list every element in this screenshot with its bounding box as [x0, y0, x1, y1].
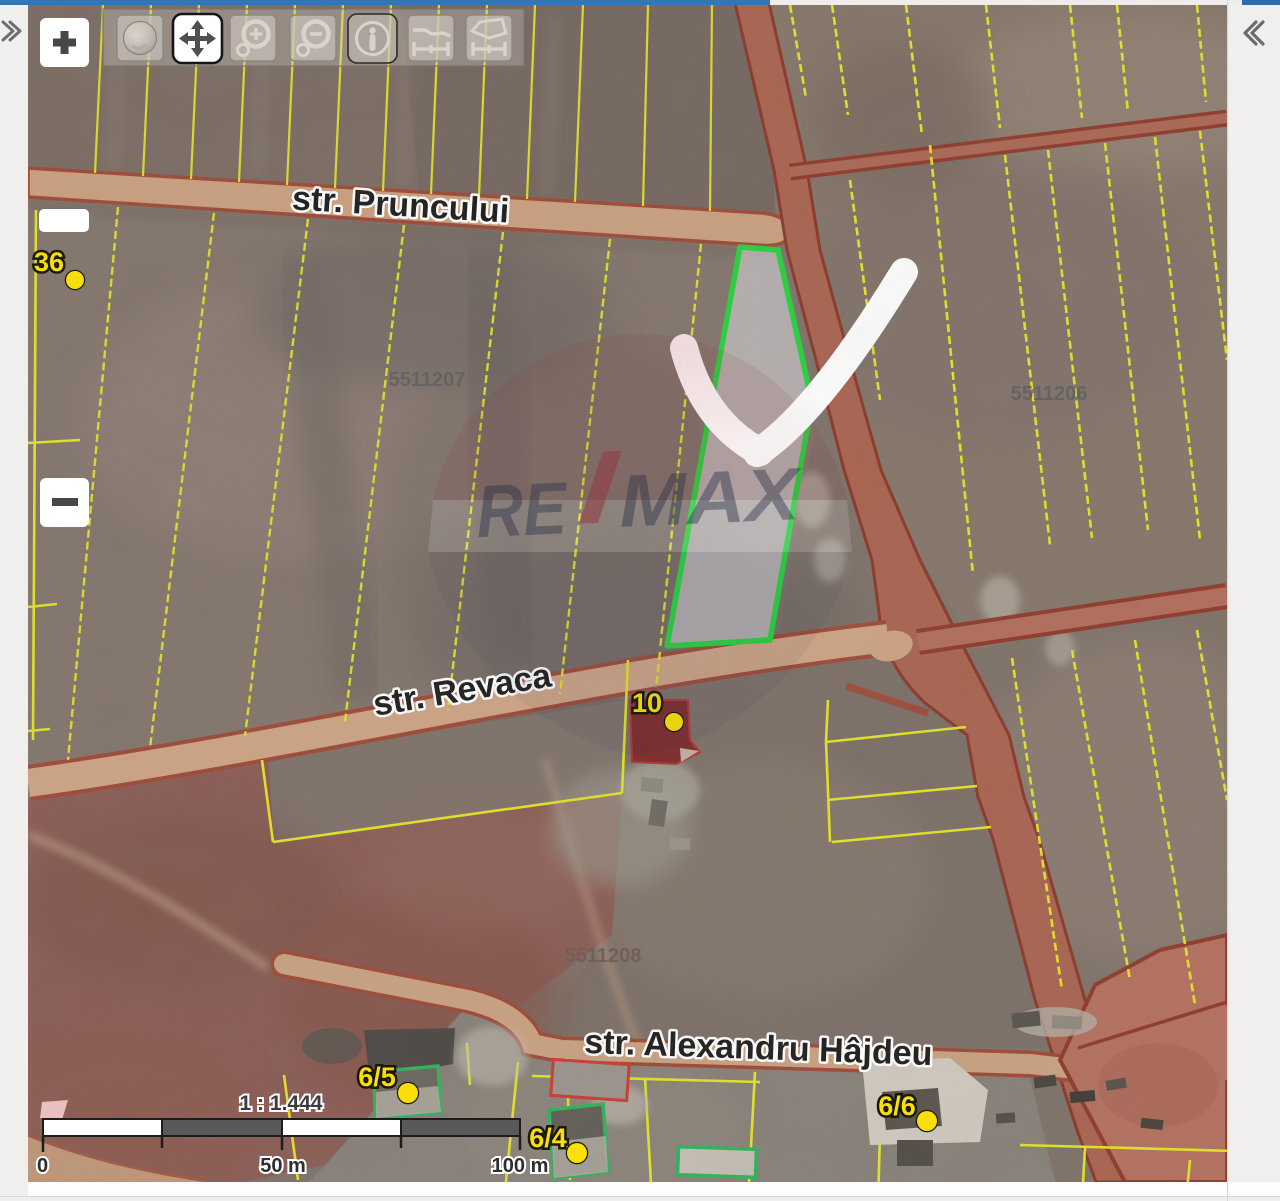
svg-text:1 : 1.444: 1 : 1.444 [240, 1092, 323, 1115]
svg-text:100 m: 100 m [492, 1155, 549, 1177]
svg-text:0: 0 [37, 1155, 48, 1177]
svg-text:50 m: 50 m [260, 1155, 306, 1177]
